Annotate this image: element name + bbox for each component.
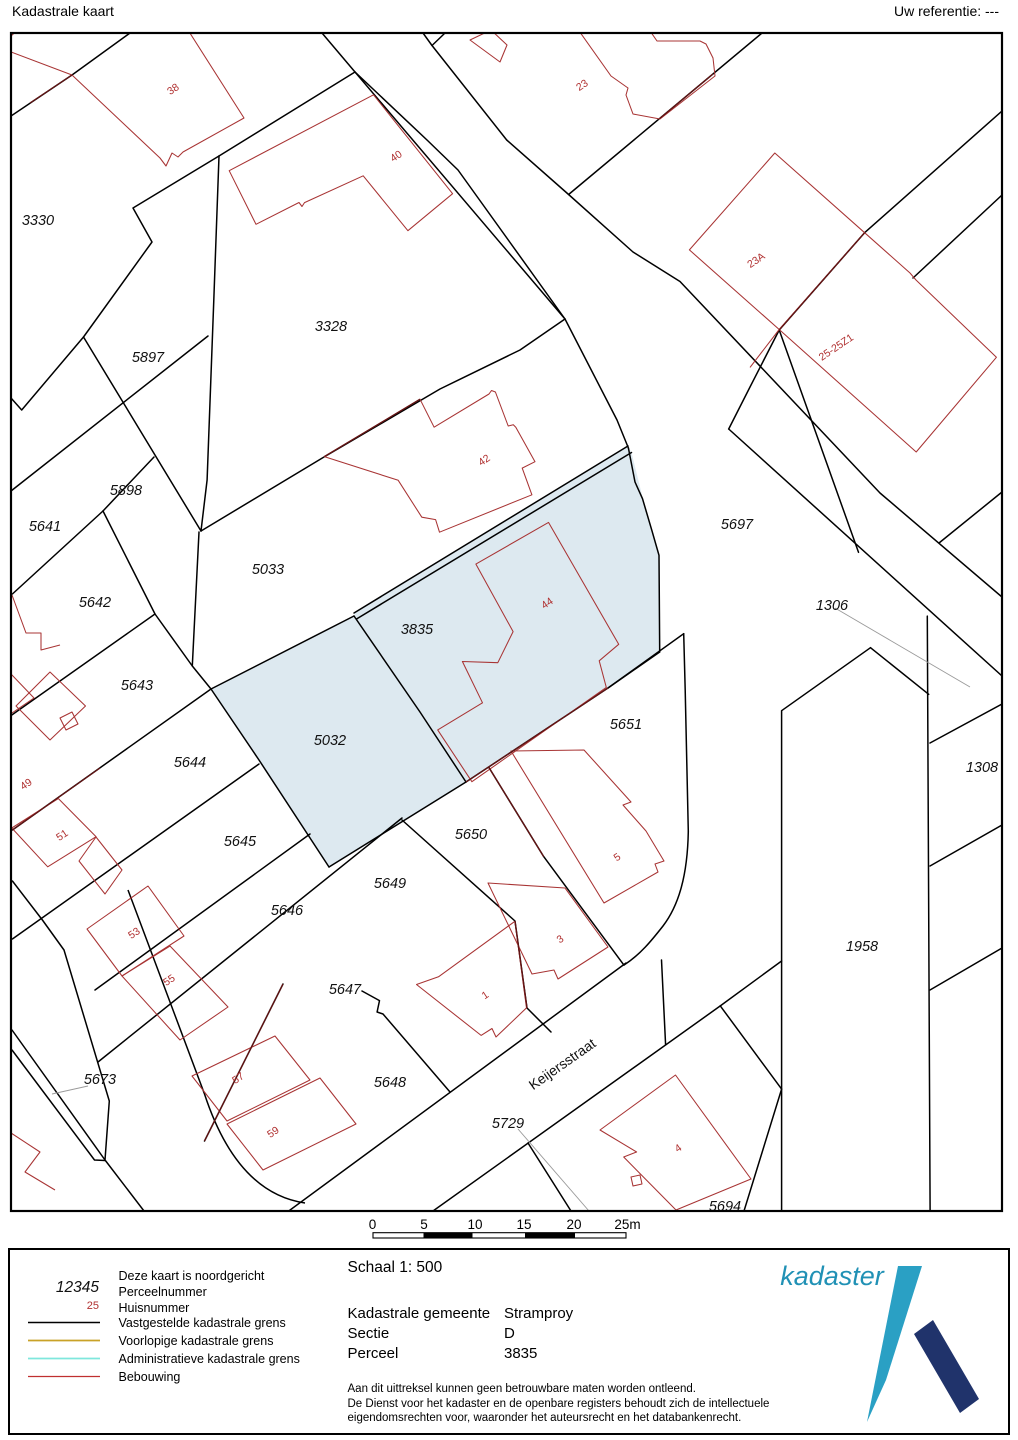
svg-text:1958: 1958: [846, 939, 878, 955]
svg-text:De Dienst voor het kadaster en: De Dienst voor het kadaster en de openba…: [348, 1398, 770, 1410]
svg-text:Voorlopige kadastrale grens: Voorlopige kadastrale grens: [119, 1334, 274, 1348]
svg-text:5642: 5642: [79, 595, 111, 611]
svg-text:5651: 5651: [610, 717, 642, 733]
svg-text:5: 5: [612, 851, 624, 864]
svg-text:1: 1: [480, 989, 492, 1002]
svg-text:Perceel: Perceel: [348, 1345, 399, 1362]
svg-text:5729: 5729: [492, 1116, 524, 1132]
svg-text:5032: 5032: [314, 733, 346, 749]
svg-text:51: 51: [54, 827, 71, 844]
svg-text:5033: 5033: [252, 562, 284, 578]
svg-text:5649: 5649: [374, 876, 406, 892]
svg-text:eigendomsrechten voor, waarond: eigendomsrechten voor, waaronder het aut…: [348, 1412, 742, 1424]
svg-text:23: 23: [574, 77, 591, 94]
svg-text:3328: 3328: [315, 319, 347, 335]
svg-text:15: 15: [516, 1217, 531, 1232]
svg-text:5697: 5697: [721, 517, 754, 533]
svg-text:12345: 12345: [56, 1279, 99, 1296]
svg-text:kadaster: kadaster: [780, 1261, 885, 1291]
svg-text:1306: 1306: [816, 598, 849, 614]
svg-text:5: 5: [420, 1217, 428, 1232]
svg-text:Vastgestelde kadastrale grens: Vastgestelde kadastrale grens: [119, 1316, 286, 1330]
svg-text:40: 40: [388, 148, 405, 165]
svg-text:59: 59: [265, 1124, 282, 1141]
svg-text:5897: 5897: [132, 350, 165, 366]
svg-text:25m: 25m: [614, 1217, 640, 1232]
svg-text:0: 0: [369, 1217, 377, 1232]
svg-text:3330: 3330: [22, 213, 54, 229]
svg-text:5645: 5645: [224, 834, 257, 850]
svg-text:38: 38: [165, 81, 182, 98]
svg-text:25: 25: [87, 1300, 99, 1312]
svg-text:Perceelnummer: Perceelnummer: [119, 1285, 207, 1299]
svg-text:5648: 5648: [374, 1075, 406, 1091]
svg-text:Administratieve kadastrale gre: Administratieve kadastrale grens: [119, 1352, 300, 1366]
svg-text:Sectie: Sectie: [348, 1325, 390, 1342]
svg-text:49: 49: [18, 776, 35, 793]
svg-text:Huisnummer: Huisnummer: [119, 1301, 190, 1315]
svg-text:23A: 23A: [745, 250, 767, 270]
svg-text:5644: 5644: [174, 755, 206, 771]
svg-text:3835: 3835: [401, 622, 434, 638]
svg-text:Keijersstraat: Keijersstraat: [526, 1035, 599, 1093]
svg-text:3835: 3835: [504, 1345, 537, 1362]
svg-text:20: 20: [566, 1217, 581, 1232]
svg-text:5650: 5650: [455, 827, 487, 843]
svg-text:42: 42: [476, 452, 493, 469]
svg-text:Kadastrale gemeente: Kadastrale gemeente: [348, 1305, 491, 1322]
svg-text:25-25Z1: 25-25Z1: [817, 332, 856, 364]
svg-text:4: 4: [673, 1142, 685, 1155]
svg-text:5641: 5641: [29, 519, 61, 535]
svg-text:10: 10: [467, 1217, 482, 1232]
svg-text:5694: 5694: [709, 1199, 741, 1215]
svg-text:5643: 5643: [121, 678, 153, 694]
svg-text:D: D: [504, 1325, 515, 1342]
svg-text:Aan dit uittreksel kunnen geen: Aan dit uittreksel kunnen geen betrouwba…: [348, 1383, 696, 1395]
svg-text:Schaal 1: 500: Schaal 1: 500: [348, 1259, 443, 1276]
svg-text:Stramproy: Stramproy: [504, 1305, 574, 1322]
svg-text:1308: 1308: [966, 760, 998, 776]
svg-text:5647: 5647: [329, 982, 362, 998]
svg-text:5646: 5646: [271, 903, 304, 919]
svg-text:5673: 5673: [84, 1072, 116, 1088]
svg-text:Bebouwing: Bebouwing: [119, 1370, 181, 1384]
svg-text:5898: 5898: [110, 483, 142, 499]
svg-text:Deze kaart is noordgericht: Deze kaart is noordgericht: [119, 1269, 265, 1283]
svg-text:53: 53: [126, 925, 143, 942]
svg-text:3: 3: [555, 933, 567, 946]
